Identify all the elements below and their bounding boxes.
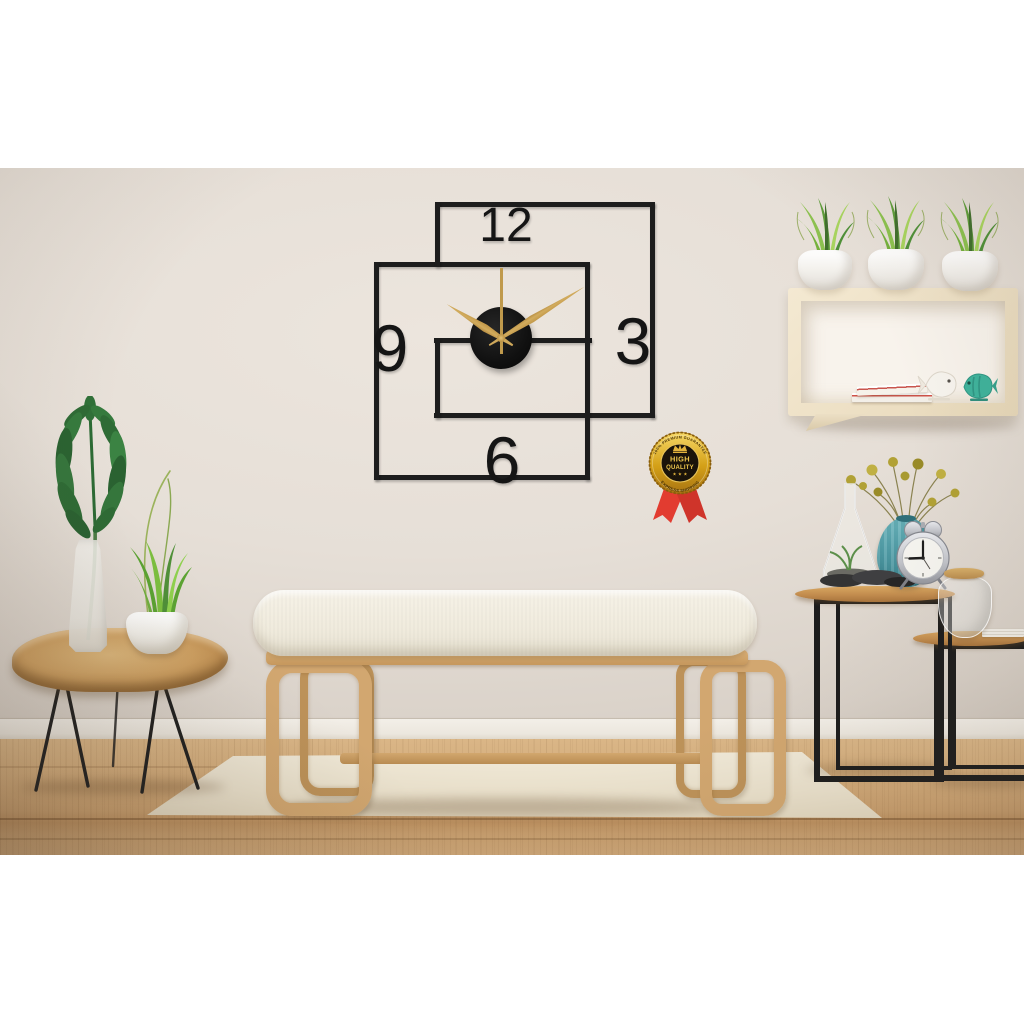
shelf-grass-2 bbox=[862, 192, 928, 254]
floor-plank-seam bbox=[0, 838, 1024, 840]
shelf-pot-3 bbox=[942, 251, 998, 291]
shelf-pot-1 bbox=[798, 250, 852, 290]
grass-plant-left bbox=[118, 463, 198, 623]
badge-title-quality: QUALITY bbox=[666, 465, 694, 471]
bench-cushion bbox=[253, 590, 757, 656]
badge-crown-base bbox=[673, 452, 687, 453]
glass-jar bbox=[938, 576, 992, 638]
product-photo-page: { "photo": { "wall_clock": { "numerals":… bbox=[0, 0, 1024, 1024]
teal-fish-figurine bbox=[960, 370, 998, 403]
hairpin-legs bbox=[18, 680, 228, 796]
shelf-grass-3 bbox=[936, 194, 1002, 256]
living-room-photo: 12 9 3 6 HIGH QUALITY ★ ★ ★ 100% PREMIU bbox=[0, 168, 1024, 855]
clock-frame-top-edge bbox=[435, 202, 655, 207]
tall-table-front-legs bbox=[814, 598, 944, 782]
clock-numeral-3: 3 bbox=[609, 308, 657, 374]
badge-stars: ★ ★ ★ bbox=[673, 472, 689, 477]
clock-frame-lower-edge bbox=[434, 413, 655, 418]
alarm-hour-hand bbox=[910, 558, 924, 559]
bench-stretcher bbox=[340, 753, 708, 764]
clock-numeral-6: 6 bbox=[478, 427, 526, 493]
clock-center-cap bbox=[497, 334, 505, 342]
badge-title-high: HIGH bbox=[670, 455, 690, 464]
clock-frame-inner-left-edge bbox=[435, 338, 440, 418]
clock-frame-mid-top-edge bbox=[374, 262, 590, 267]
white-fish-figurine bbox=[916, 368, 960, 402]
floor-plank-seam bbox=[0, 818, 1024, 820]
quality-badge: HIGH QUALITY ★ ★ ★ 100% PREMIUM GUARANTE… bbox=[642, 430, 718, 526]
bench-front-right-leg bbox=[700, 660, 786, 816]
bench-front-left-leg bbox=[266, 660, 372, 816]
clock-frame-inner-right-edge bbox=[585, 262, 590, 480]
magazine bbox=[982, 629, 1024, 637]
clock-numeral-9: 9 bbox=[366, 315, 414, 381]
clock-numeral-12: 12 bbox=[476, 202, 536, 250]
alarm-clock bbox=[894, 520, 952, 590]
shelf-pot-2 bbox=[868, 249, 924, 290]
shelf-grass-1 bbox=[792, 194, 858, 256]
clock-frame-upper-left-edge bbox=[435, 202, 440, 267]
jar-wood-lid bbox=[944, 568, 984, 579]
